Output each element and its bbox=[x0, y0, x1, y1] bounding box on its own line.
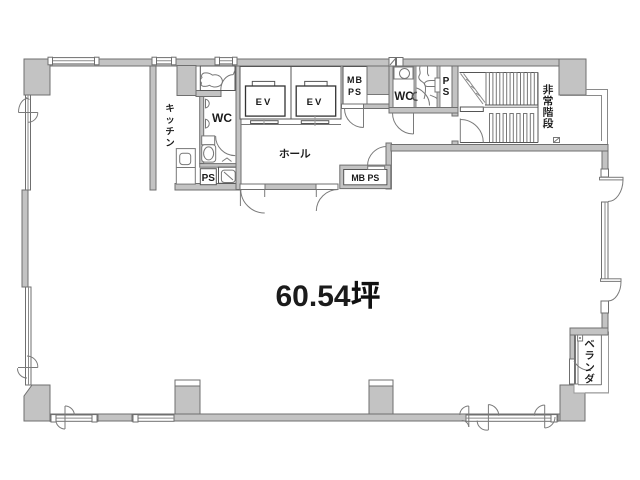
svg-text:S: S bbox=[443, 87, 450, 98]
svg-text:PS: PS bbox=[348, 87, 362, 97]
svg-text:EV: EV bbox=[256, 97, 273, 108]
svg-text:EV: EV bbox=[307, 97, 324, 108]
svg-text:WC: WC bbox=[394, 91, 413, 103]
svg-text:MB: MB bbox=[347, 75, 363, 85]
svg-text:MB PS: MB PS bbox=[351, 173, 379, 183]
svg-text:WC: WC bbox=[212, 111, 232, 125]
svg-text:P: P bbox=[443, 76, 450, 87]
svg-text:PS: PS bbox=[202, 173, 216, 184]
svg-text:60.54: 60.54 bbox=[276, 280, 351, 313]
